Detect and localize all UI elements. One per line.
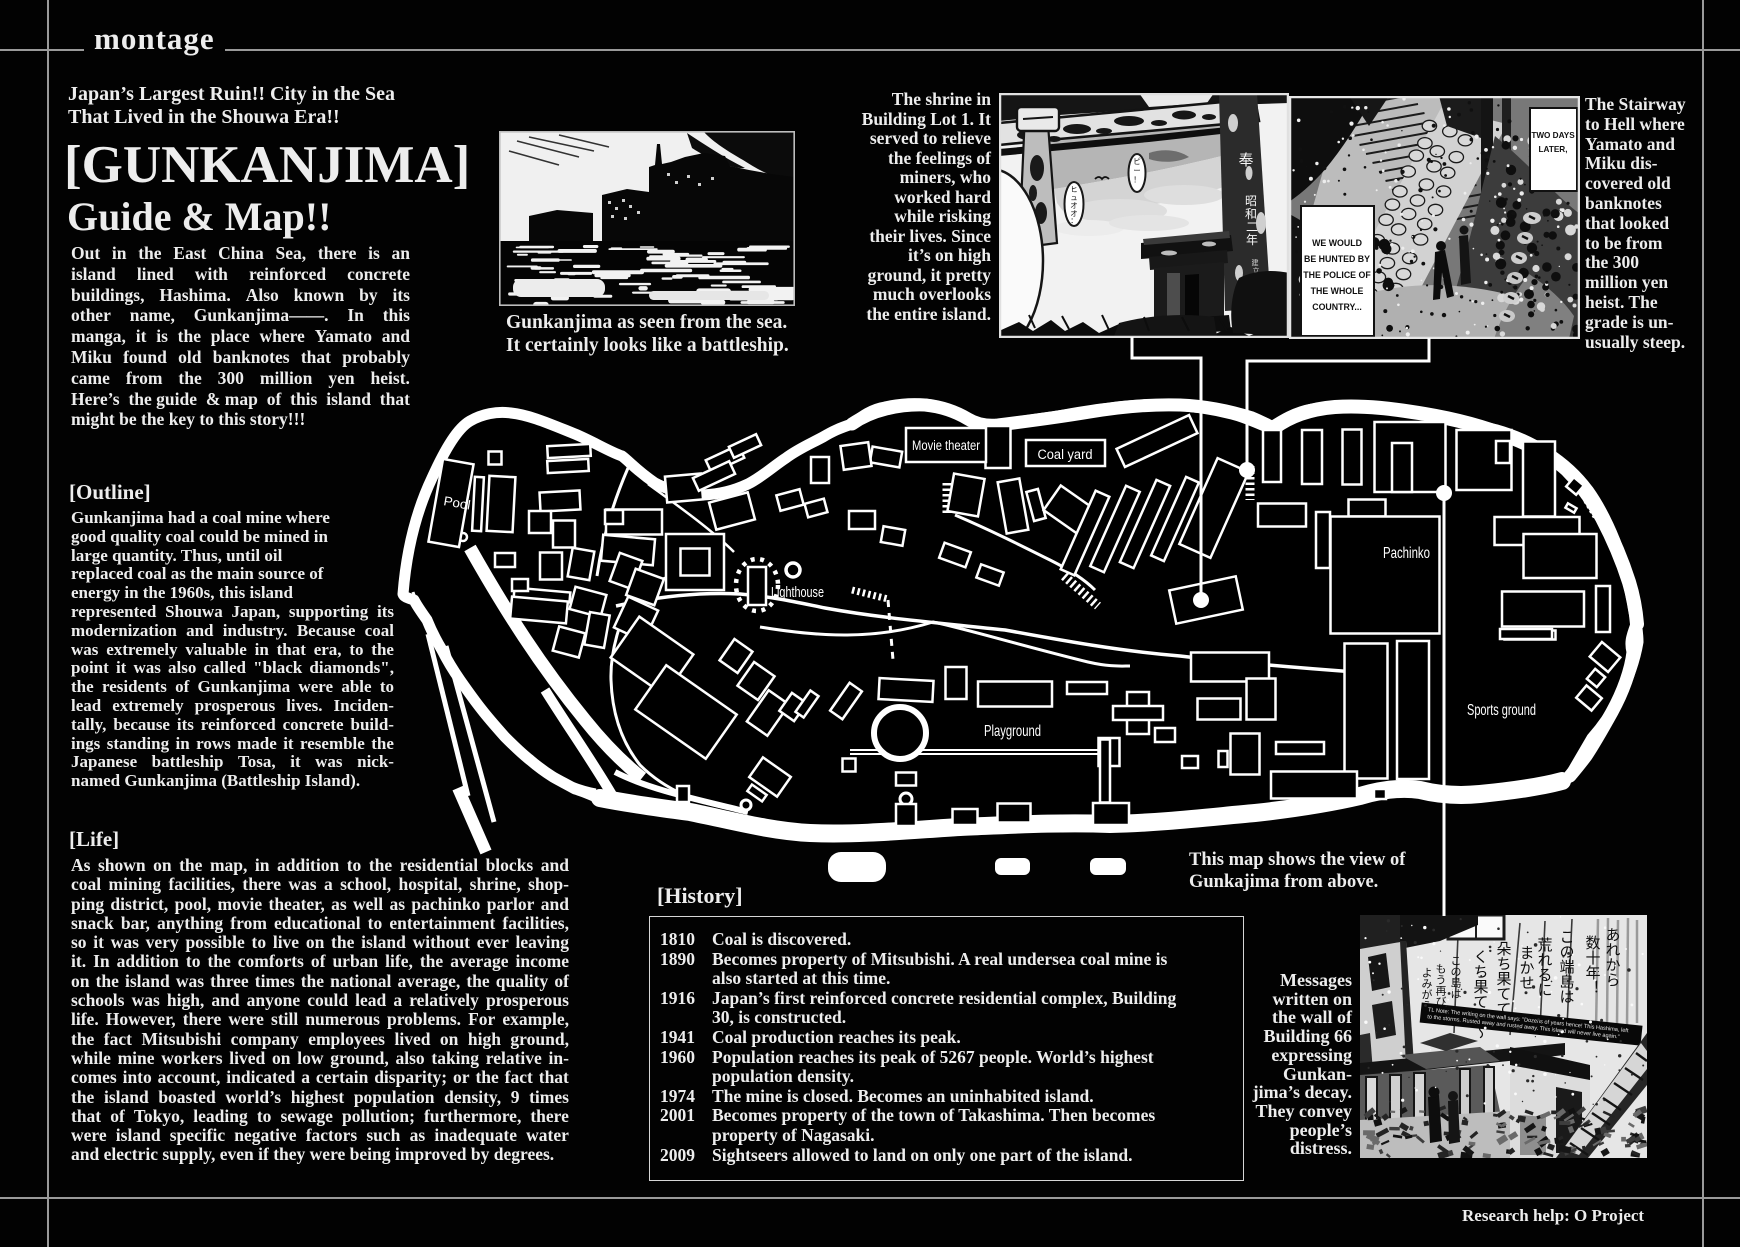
svg-text:ー: ー <box>1133 166 1141 175</box>
svg-text:COUNTRY...: COUNTRY... <box>1312 302 1362 312</box>
svg-text:Playground: Playground <box>984 723 1041 740</box>
svg-text:WE WOULD: WE WOULD <box>1312 238 1362 248</box>
svg-text:Lighthouse: Lighthouse <box>771 585 824 601</box>
svg-text:年: 年 <box>1246 233 1258 247</box>
svg-text:THE WHOLE: THE WHOLE <box>1311 286 1364 296</box>
svg-text:TWO DAYS: TWO DAYS <box>1531 131 1575 140</box>
svg-text:Sports ground: Sports ground <box>1467 702 1536 719</box>
svg-text:昭: 昭 <box>1245 194 1257 208</box>
svg-text:奉: 奉 <box>1238 151 1253 169</box>
svg-text:Movie theater: Movie theater <box>912 438 980 453</box>
svg-text:Pachinko: Pachinko <box>1383 545 1430 562</box>
svg-text:LATER,: LATER, <box>1539 145 1568 154</box>
svg-text:ピ: ピ <box>1133 157 1141 166</box>
svg-text:二: 二 <box>1246 220 1258 234</box>
svg-text:建: 建 <box>1252 258 1259 267</box>
svg-text:Coal yard: Coal yard <box>1038 447 1093 462</box>
svg-text:！: ！ <box>1133 175 1141 184</box>
svg-text:BE HUNTED BY: BE HUNTED BY <box>1304 254 1370 264</box>
svg-text:THE POLICE OF: THE POLICE OF <box>1303 270 1371 280</box>
svg-text:：: ： <box>1070 216 1078 225</box>
svg-text:和: 和 <box>1245 207 1257 221</box>
